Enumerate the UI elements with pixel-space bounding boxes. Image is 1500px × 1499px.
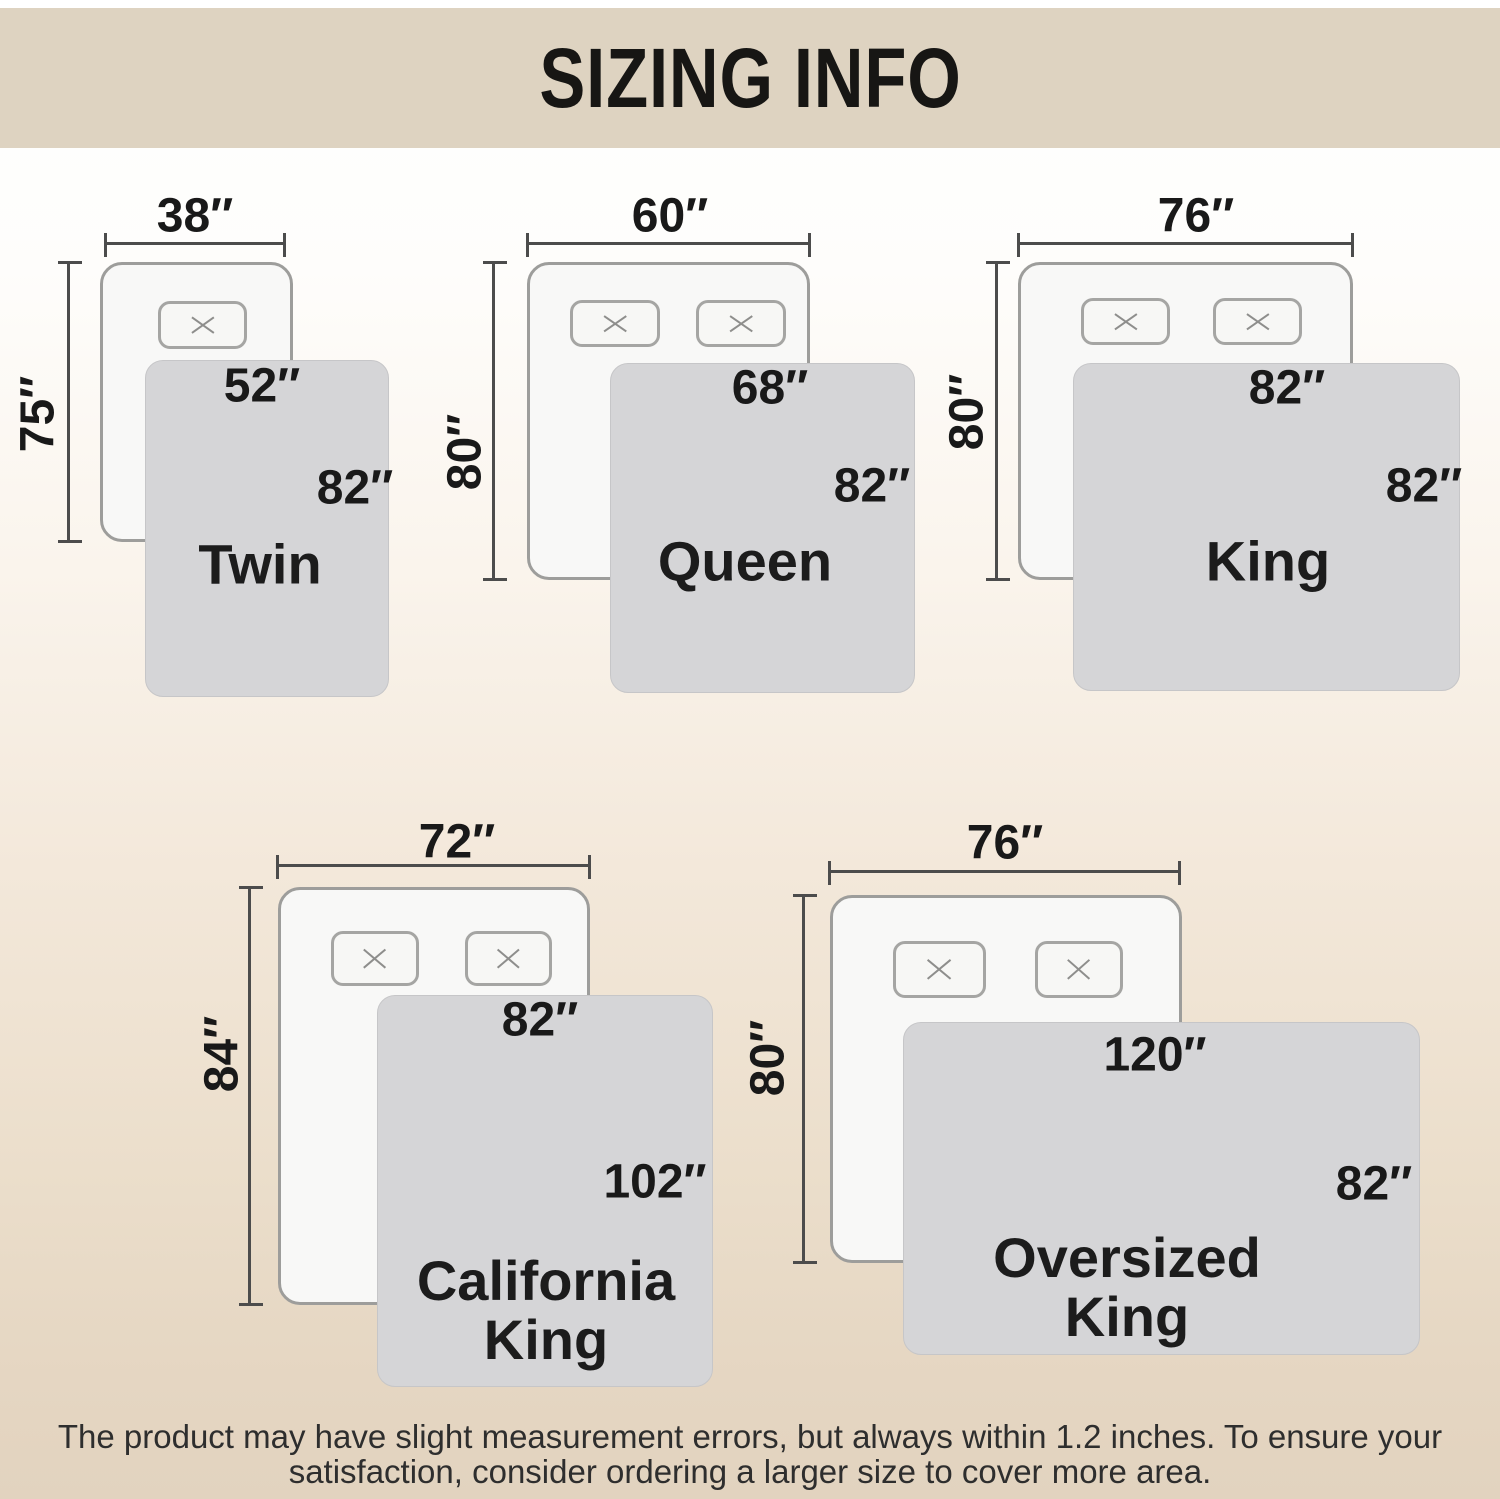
- california-king-blanket-length-label: 102″: [603, 1155, 706, 1210]
- oversized-king-bed-width-dimension-line: [829, 870, 1180, 873]
- sizing-info-infographic: SIZING INFO 38″ 75″ 52″ 82″ Twin 60″ 80″: [0, 0, 1500, 1499]
- pillow-icon: [465, 931, 552, 986]
- king-bed-width-dimension-line: [1018, 242, 1353, 245]
- king-bed-width-label: 76″: [1158, 189, 1234, 244]
- california-king-bed-length-dimension-line: [248, 887, 251, 1305]
- king-name-label: King: [1206, 533, 1330, 592]
- california-king-bed-length-label: 84″: [195, 1016, 250, 1092]
- footer-note-line2: satisfaction, consider ordering a larger…: [0, 1453, 1500, 1491]
- pillow-x-icon: [716, 309, 766, 339]
- pillow-icon: [158, 301, 247, 349]
- oversized-king-bed-length-label: 80″: [741, 1020, 796, 1096]
- twin-bed-width-label: 38″: [157, 189, 233, 244]
- pillow-icon: [331, 931, 419, 986]
- twin-bed-width-dimension-line: [105, 242, 285, 245]
- pillow-x-icon: [178, 310, 228, 340]
- footer-note-line1: The product may have slight measurement …: [0, 1418, 1500, 1456]
- pillow-x-icon: [1101, 307, 1151, 337]
- twin-name-label: Twin: [198, 536, 321, 595]
- oversized-king-blanket-length-label: 82″: [1336, 1157, 1412, 1212]
- pillow-icon: [1081, 298, 1170, 345]
- pillow-icon: [893, 941, 986, 998]
- pillow-icon: [696, 300, 786, 347]
- twin-blanket-length-label: 82″: [317, 461, 393, 516]
- twin-bed-length-label: 75″: [11, 376, 66, 452]
- oversized-king-bed-length-dimension-line: [802, 895, 805, 1263]
- queen-blanket-length-label: 82″: [834, 459, 910, 514]
- queen-bed-length-label: 80″: [438, 414, 493, 490]
- king-bed-length-dimension-line: [995, 262, 998, 580]
- queen-bed-width-label: 60″: [632, 189, 708, 244]
- oversized-king-bed-width-label: 76″: [967, 816, 1043, 871]
- pillow-icon: [1035, 941, 1123, 998]
- pillow-icon: [1213, 298, 1302, 345]
- header-band: SIZING INFO: [0, 8, 1500, 148]
- pillow-x-icon: [1054, 951, 1103, 988]
- california-king-bed-width-dimension-line: [277, 864, 590, 867]
- king-blanket-length-label: 82″: [1386, 459, 1462, 514]
- pillow-x-icon: [590, 309, 640, 339]
- queen-blanket-width-label: 68″: [732, 361, 808, 416]
- pillow-x-icon: [913, 951, 965, 988]
- king-bed-length-label: 80″: [940, 374, 995, 450]
- king-blanket-width-label: 82″: [1249, 361, 1325, 416]
- pillow-x-icon: [350, 941, 399, 976]
- oversized-king-name-label: Oversized King: [993, 1229, 1261, 1347]
- oversized-king-blanket-width-label: 120″: [1103, 1028, 1206, 1083]
- queen-name-label: Queen: [658, 533, 832, 592]
- page-title: SIZING INFO: [539, 30, 961, 127]
- pillow-x-icon: [1233, 307, 1283, 337]
- california-king-bed-width-label: 72″: [419, 815, 495, 870]
- queen-bed-width-dimension-line: [527, 242, 810, 245]
- pillow-icon: [570, 300, 660, 347]
- pillow-x-icon: [484, 941, 533, 976]
- queen-bed-length-dimension-line: [492, 262, 495, 580]
- twin-blanket-width-label: 52″: [224, 359, 300, 414]
- twin-bed-length-dimension-line: [67, 262, 70, 542]
- california-king-blanket-width-label: 82″: [502, 993, 578, 1048]
- california-king-name-label: California King: [417, 1252, 675, 1370]
